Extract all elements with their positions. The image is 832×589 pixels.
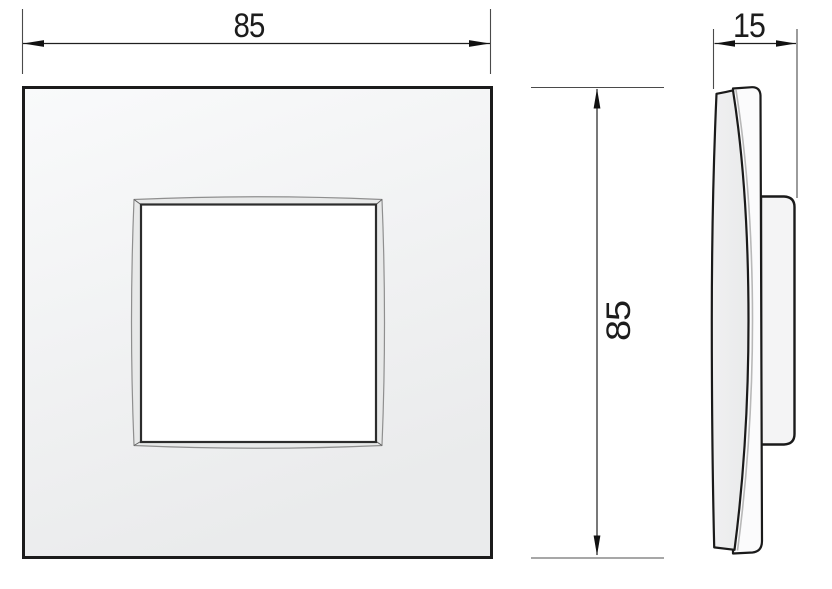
- front-view: [24, 88, 492, 558]
- arrowhead-up-icon: [594, 89, 601, 109]
- arrowhead-right-icon: [776, 40, 796, 47]
- arrowhead-left-icon: [715, 40, 735, 47]
- side-module-profile: [761, 197, 795, 445]
- arrowhead-down-icon: [594, 536, 601, 556]
- side-view: [712, 87, 795, 553]
- dim-label-side-depth: 15: [733, 7, 765, 45]
- arrowhead-left-icon: [23, 40, 44, 47]
- opening-window: [141, 205, 376, 443]
- dimension-front-height: 85: [531, 88, 664, 559]
- dimension-front-width: 85: [23, 7, 491, 74]
- technical-drawing: 85 15 85: [0, 0, 832, 589]
- drawing-canvas: 85 15 85: [0, 0, 832, 589]
- dim-label-front-height: 85: [600, 301, 638, 341]
- dim-label-front-width: 85: [234, 7, 265, 45]
- arrowhead-right-icon: [469, 40, 490, 47]
